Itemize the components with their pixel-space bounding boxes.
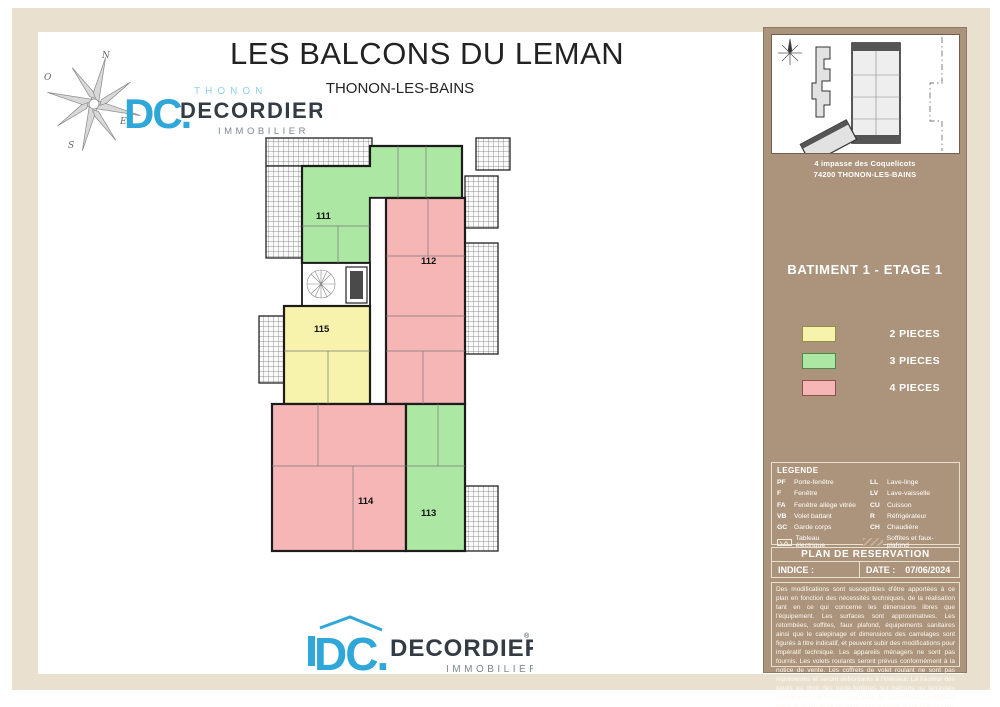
plan-reservation-page: N O E S DC. THONON DECORDIER IMMOBILIER … [0, 0, 1000, 707]
abbr-pf: PF [777, 478, 794, 488]
electric-panel-icon [777, 539, 792, 546]
date-value: 07/06/2024 [905, 565, 950, 577]
abbr-ch: CH [870, 523, 887, 533]
abbr-vb: VB [777, 512, 794, 522]
legend-row-4p: 4 PIECES [764, 380, 966, 396]
indice-label: INDICE : [772, 562, 860, 577]
abbr-f-label: Fenêtre [794, 489, 870, 499]
spiral-staircase-icon [307, 270, 335, 298]
indice-date-row: INDICE : DATE : 07/06/2024 [771, 562, 960, 578]
page-subtitle: THONON-LES-BAINS [230, 80, 570, 97]
abbreviations-legend: LEGENDE PF Porte-fenêtre LL Lave-linge F… [771, 462, 960, 545]
swatch-2-pieces [802, 326, 836, 342]
compass-o-label: O [44, 73, 52, 83]
legende-title: LEGENDE [777, 466, 954, 475]
unit-115-label: 115 [314, 324, 330, 335]
abbr-r: R [870, 512, 887, 522]
decordier-logo-footer: DC. DECORDIER ® IMMOBILIER [298, 614, 533, 680]
floor-plan: 111 112 115 114 113 [258, 136, 514, 568]
building-floor-title: BATIMENT 1 - ETAGE 1 [764, 262, 966, 277]
abbr-cu: CU [870, 501, 887, 511]
minimap-compass-icon [778, 39, 802, 65]
abbr-pf-label: Porte-fenêtre [794, 478, 870, 488]
swatch-3-pieces [802, 353, 836, 369]
logo-tagline-bottom: IMMOBILIER [446, 664, 533, 675]
unit-112-label: 112 [421, 256, 436, 267]
abbr-fa: FA [777, 501, 794, 511]
label-4-pieces: 4 PIECES [890, 382, 940, 394]
date-label: DATE : [866, 565, 895, 577]
site-minimap [771, 34, 960, 154]
abbr-cu-label: Cuisson [887, 501, 954, 511]
registered-mark: ® [524, 632, 530, 640]
abbr-ch-label: Chaudière [887, 523, 954, 533]
abbr-lv: LV [870, 489, 887, 499]
label-3-pieces: 3 PIECES [890, 355, 940, 367]
unit-114-label: 114 [358, 496, 374, 507]
reservation-plan-title: PLAN DE RESERVATION [771, 547, 960, 562]
legend-row-2p: 2 PIECES [764, 326, 966, 342]
unit-111-label: 111 [316, 211, 332, 222]
abbr-vb-label: Volet battant [794, 512, 870, 522]
unit-114-area [272, 404, 406, 551]
abbr-ll: LL [870, 478, 887, 488]
minimap-building-main [852, 43, 900, 143]
legend-row-3p: 3 PIECES [764, 353, 966, 369]
logo-name: DECORDIER [180, 98, 322, 123]
minimap-boundary-line [930, 37, 942, 151]
info-sidebar: 4 impasse des Coquelicots 74200 THONON-L… [763, 27, 967, 673]
minimap-building-west [812, 47, 830, 117]
soffit-hatch-icon [863, 538, 882, 546]
dc-house-icon: DC. [308, 617, 387, 680]
legal-disclaimer-text: Des modifications sont susceptibles d'êt… [776, 586, 955, 707]
compass-s-label: S [68, 141, 74, 151]
elevator-icon [346, 267, 367, 303]
abbr-r-label: Réfrigérateur [887, 512, 954, 522]
abbr-fa-label: Fenêtre allège vitrée [794, 501, 870, 511]
unit-113-area [406, 404, 465, 551]
address-line-1: 4 impasse des Coquelicots [764, 158, 966, 169]
corridor [370, 198, 386, 404]
compass-n-label: N [101, 51, 111, 61]
abbr-gc: GC [777, 523, 794, 533]
unit-115-area [284, 306, 370, 404]
unit-113-label: 113 [421, 508, 436, 519]
swatch-4-pieces [802, 380, 836, 396]
unit-112-area [386, 198, 465, 404]
abbr-lv-label: Lave-vaisselle [887, 489, 954, 499]
page-title: LES BALCONS DU LEMAN [230, 36, 570, 72]
label-2-pieces: 2 PIECES [890, 328, 940, 340]
legal-disclaimer-box: Des modifications sont susceptibles d'êt… [771, 582, 960, 667]
abbr-ll-label: Lave-linge [887, 478, 954, 488]
abbr-f: F [777, 489, 794, 499]
abbr-gc-label: Garde corps [794, 523, 870, 533]
minimap-building-south [800, 120, 856, 153]
project-address: 4 impasse des Coquelicots 74200 THONON-L… [764, 158, 966, 181]
dc-monogram-bottom: DC. [314, 628, 387, 680]
logo-name-bottom: DECORDIER [390, 635, 533, 662]
address-line-2: 74200 THONON-LES-BAINS [764, 169, 966, 180]
unit-type-legend: 2 PIECES 3 PIECES 4 PIECES [764, 326, 966, 407]
